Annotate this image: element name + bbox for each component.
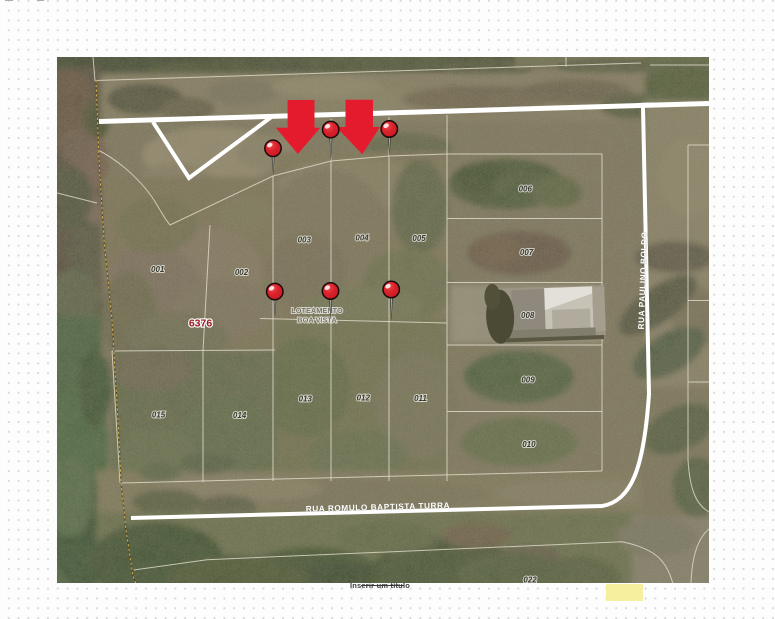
svg-text:LOTEAMENTO: LOTEAMENTO — [291, 306, 343, 315]
svg-text:015: 015 — [152, 410, 166, 419]
svg-text:013: 013 — [299, 395, 313, 404]
svg-text:BOA VISTA: BOA VISTA — [297, 316, 337, 325]
svg-text:001: 001 — [151, 265, 165, 274]
svg-text:6376: 6376 — [189, 318, 213, 330]
svg-text:009: 009 — [521, 375, 535, 384]
svg-text:012: 012 — [357, 393, 371, 402]
svg-text:011: 011 — [414, 394, 427, 403]
svg-text:008: 008 — [521, 311, 535, 320]
svg-text:005: 005 — [412, 234, 426, 243]
svg-text:014: 014 — [233, 411, 247, 420]
svg-text:022: 022 — [523, 575, 537, 583]
svg-text:002: 002 — [235, 268, 249, 277]
svg-text:006: 006 — [519, 184, 533, 193]
svg-text:003: 003 — [298, 235, 312, 244]
svg-text:004: 004 — [355, 234, 369, 243]
svg-text:010: 010 — [522, 440, 536, 449]
svg-text:007: 007 — [520, 248, 534, 257]
